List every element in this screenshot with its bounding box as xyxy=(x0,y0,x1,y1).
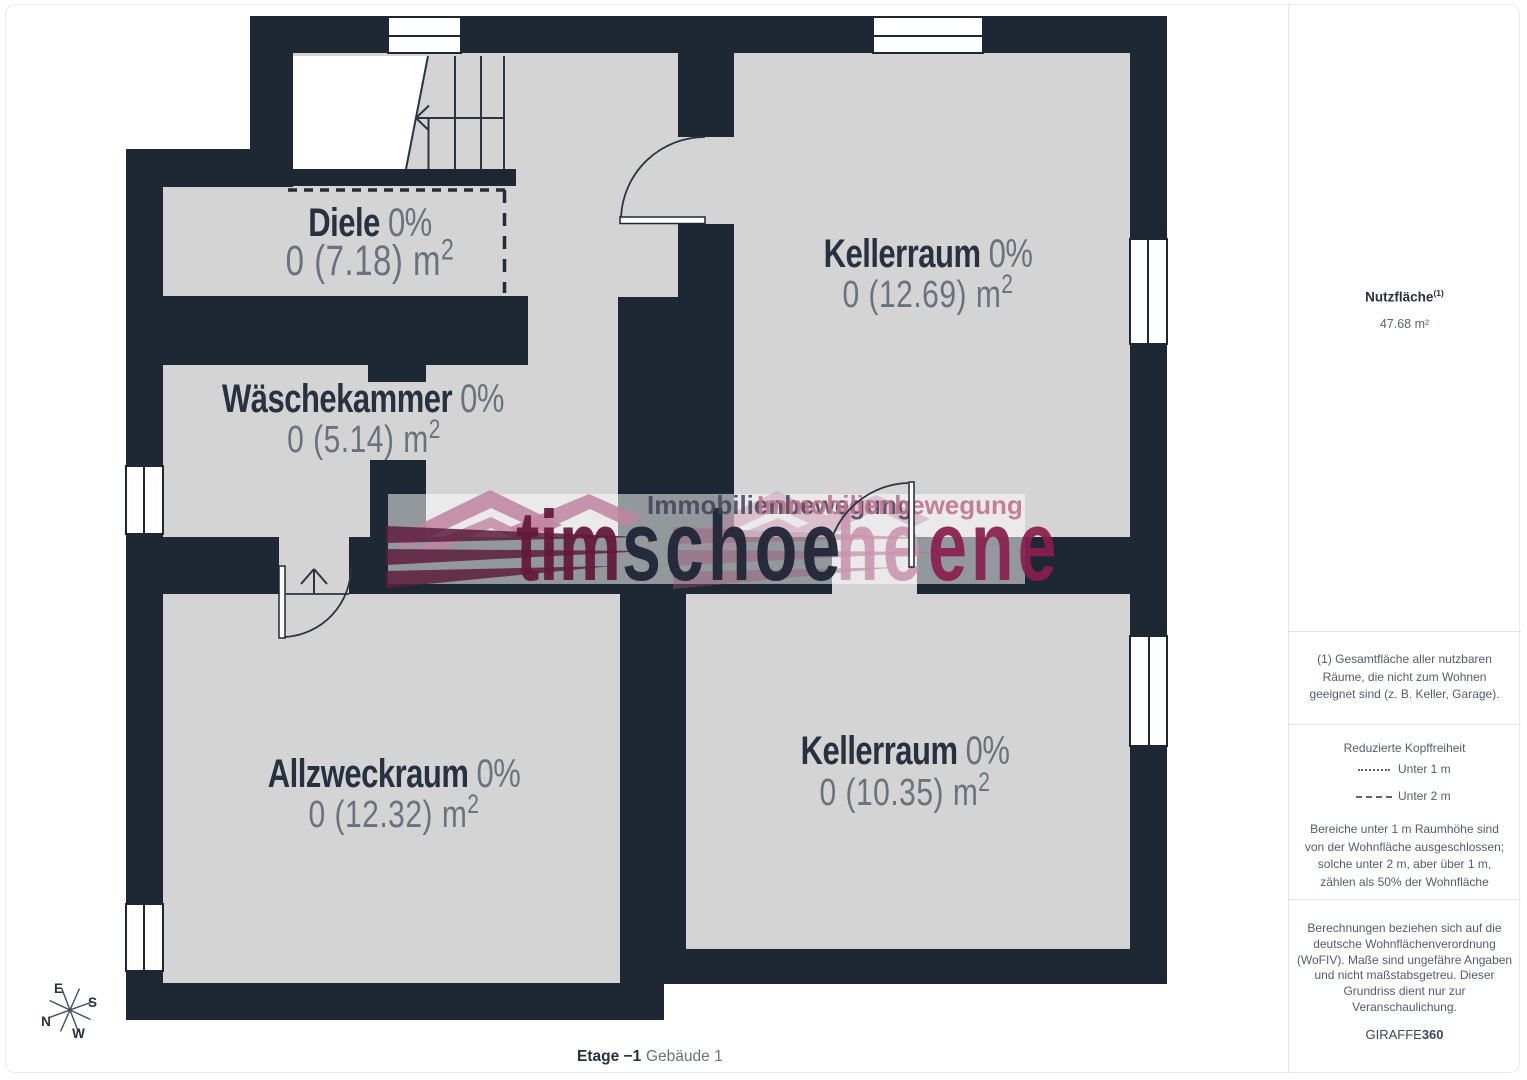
svg-text:Gebäude 1: Gebäude 1 xyxy=(646,1048,723,1065)
svg-text:Etage −1: Etage −1 xyxy=(577,1048,642,1065)
svg-text:W: W xyxy=(72,1026,85,1041)
svg-text:0 (10.35) m2: 0 (10.35) m2 xyxy=(820,768,991,814)
svg-text:0 (7.18) m2: 0 (7.18) m2 xyxy=(286,233,455,285)
svg-text:0 (5.14) m2: 0 (5.14) m2 xyxy=(287,415,441,461)
svg-text:Wäschekammer 0%: Wäschekammer 0% xyxy=(222,376,504,421)
svg-text:Kellerraum 0%: Kellerraum 0% xyxy=(801,728,1010,773)
svg-text:0 (12.69) m2: 0 (12.69) m2 xyxy=(843,270,1014,316)
svg-text:E: E xyxy=(54,981,63,996)
svg-text:N: N xyxy=(41,1014,51,1029)
svg-text:Immobilienbewegung: Immobilienbewegung xyxy=(757,490,1023,520)
svg-text:Allzweckraum 0%: Allzweckraum 0% xyxy=(268,751,521,796)
svg-text:0 (12.32) m2: 0 (12.32) m2 xyxy=(309,790,480,836)
svg-text:tim: tim xyxy=(516,491,621,602)
svg-text:S: S xyxy=(88,995,97,1010)
